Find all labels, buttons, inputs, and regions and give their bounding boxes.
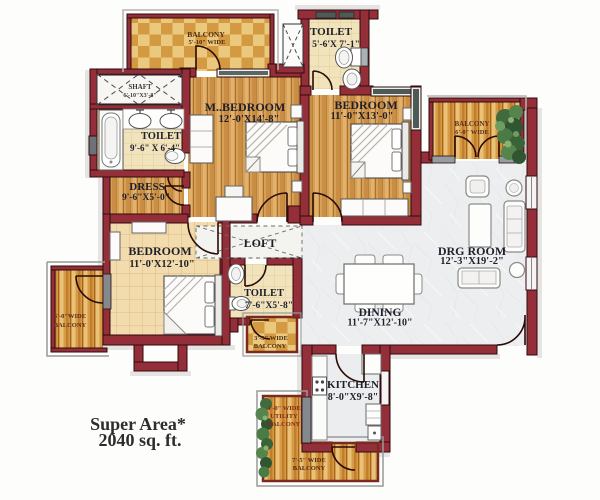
svg-text:BALCONY: BALCONY: [187, 30, 225, 39]
svg-text:BALCONY: BALCONY: [268, 421, 301, 428]
svg-text:KITCHEN: KITCHEN: [327, 379, 379, 391]
svg-text:DRESS: DRESS: [129, 181, 164, 193]
svg-text:12'-3"X19'-2": 12'-3"X19'-2": [440, 256, 504, 267]
svg-text:TOILET: TOILET: [244, 288, 284, 299]
svg-text:6'-0" WIDE: 6'-0" WIDE: [455, 129, 489, 136]
svg-text:BEDROOM: BEDROOM: [334, 98, 397, 112]
svg-text:7'-6"X5'-8": 7'-6"X5'-8": [245, 301, 293, 311]
svg-text:2040 sq. ft.: 2040 sq. ft.: [98, 430, 181, 450]
svg-text:LOFT: LOFT: [244, 236, 277, 250]
svg-text:5'-10" WIDE: 5'-10" WIDE: [189, 39, 226, 46]
svg-text:M..BEDROOM: M..BEDROOM: [205, 100, 286, 114]
svg-text:BALCONY: BALCONY: [54, 322, 87, 329]
svg-text:SHAFT: SHAFT: [128, 83, 152, 91]
svg-text:6'-10"X3'-8": 6'-10"X3'-8": [123, 93, 156, 99]
svg-text:8'-0"X9'-8": 8'-0"X9'-8": [328, 392, 379, 403]
svg-text:BEDROOM: BEDROOM: [128, 244, 191, 258]
svg-text:6'-0"WIDE: 6'-0"WIDE: [54, 313, 86, 320]
svg-text:TOILET: TOILET: [141, 131, 181, 142]
svg-text:11'-0'X12'-10": 11'-0'X12'-10": [129, 259, 194, 270]
svg-text:9'-6"X5'-0": 9'-6"X5'-0": [122, 193, 170, 203]
svg-text:7'-5" WIDE: 7'-5" WIDE: [292, 457, 326, 464]
svg-text:5'-6'X 7'-1": 5'-6'X 7'-1": [312, 40, 360, 50]
svg-text:11'-0"X13'-0": 11'-0"X13'-0": [331, 111, 394, 122]
svg-text:11'-7"X12'-10": 11'-7"X12'-10": [348, 318, 413, 329]
svg-text:BALCONY: BALCONY: [454, 120, 489, 128]
svg-text:12'-0'X14'-8": 12'-0'X14'-8": [219, 114, 280, 125]
svg-text:BALCONY: BALCONY: [293, 465, 326, 472]
svg-text:9'-6" X 6'-4": 9'-6" X 6'-4": [130, 143, 180, 153]
svg-text:TOILET: TOILET: [310, 26, 353, 38]
svg-text:BALCONY: BALCONY: [254, 343, 287, 350]
svg-text:3'-5" WIDE: 3'-5" WIDE: [254, 335, 288, 342]
svg-text:4'-0" WIDE: 4'-0" WIDE: [267, 405, 301, 412]
svg-text:UTILITY: UTILITY: [270, 413, 298, 420]
